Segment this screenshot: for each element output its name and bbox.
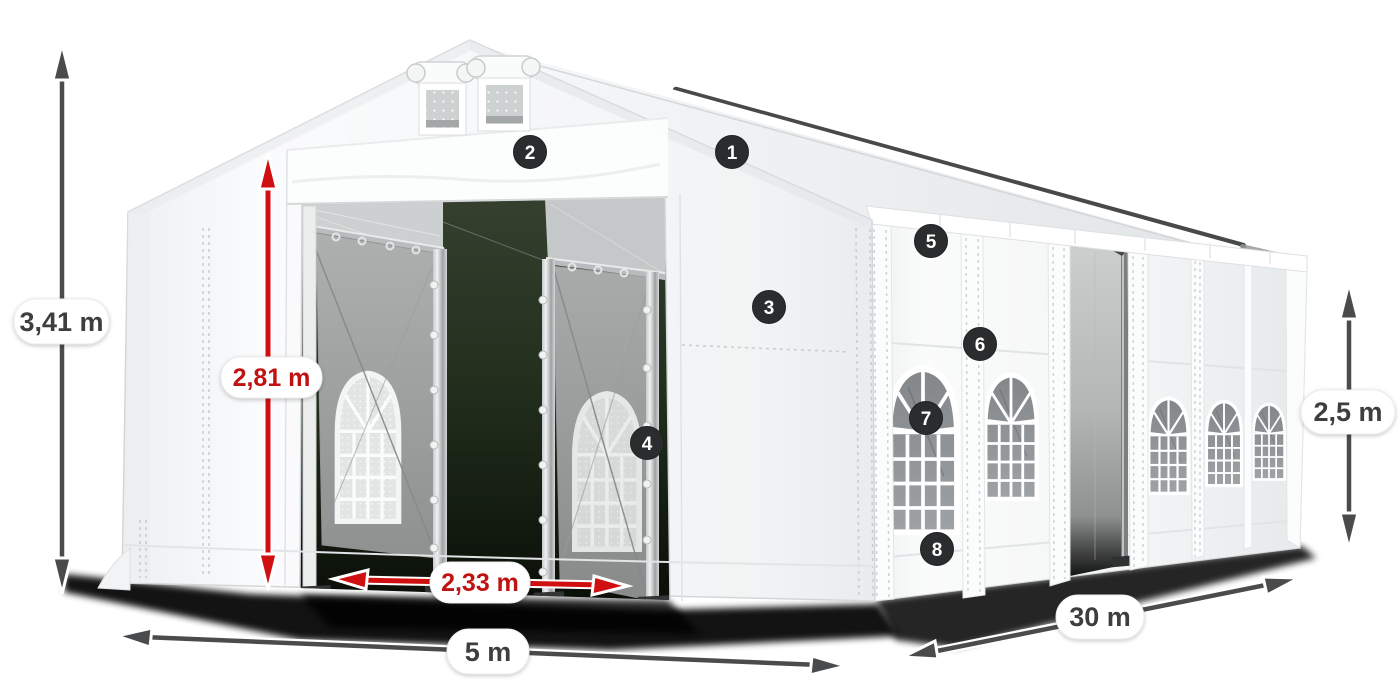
arrow-left-icon [117,628,152,647]
doorway-pole [1121,249,1128,565]
front-width-value: 5 m [465,637,512,667]
side-window [1205,400,1243,487]
side-length-value: 30 m [1069,602,1131,632]
badge-4-number: 4 [642,434,653,455]
total-height-value: 3,41 m [19,307,103,337]
entrance-width-value: 2,33 m [441,569,519,597]
side-window [1147,396,1190,495]
badge-4: 4 [631,427,664,460]
side-window [983,372,1039,501]
gate-window [335,371,402,524]
entrance-height-value: 2,81 m [233,364,311,392]
tent-dimension-diagram: 1 2 3 4 5 6 7 8 [0,0,1400,700]
badge-7: 7 [910,402,943,435]
badge-5: 5 [915,225,948,258]
side-height-value: 2,5 m [1313,397,1382,427]
side-window [886,365,960,535]
side-window [1252,403,1286,481]
skirt-flare [98,548,130,590]
badge-3-number: 3 [764,298,775,319]
badge-2-number: 2 [525,143,536,164]
badge-3: 3 [753,291,786,324]
badge-6-number: 6 [975,335,986,356]
arrow-up-icon [53,44,71,80]
arrow-down-icon [1340,513,1358,549]
gate-window [572,391,642,552]
arrow-up-icon [1340,283,1358,319]
badge-1-number: 1 [727,143,738,164]
arrow-right-icon [810,656,846,675]
badge-6: 6 [964,328,997,361]
badge-8: 8 [921,533,954,566]
badge-2: 2 [514,136,547,169]
diagram-canvas: 1 2 3 4 5 6 7 8 [0,0,1400,700]
arrow-right-icon [1263,577,1299,595]
badge-1: 1 [716,136,749,169]
arrow-left-icon [903,641,938,659]
badge-5-number: 5 [926,232,937,253]
badge-8-number: 8 [932,540,943,561]
badge-7-number: 7 [921,409,932,430]
inner-gate-left [301,224,444,558]
